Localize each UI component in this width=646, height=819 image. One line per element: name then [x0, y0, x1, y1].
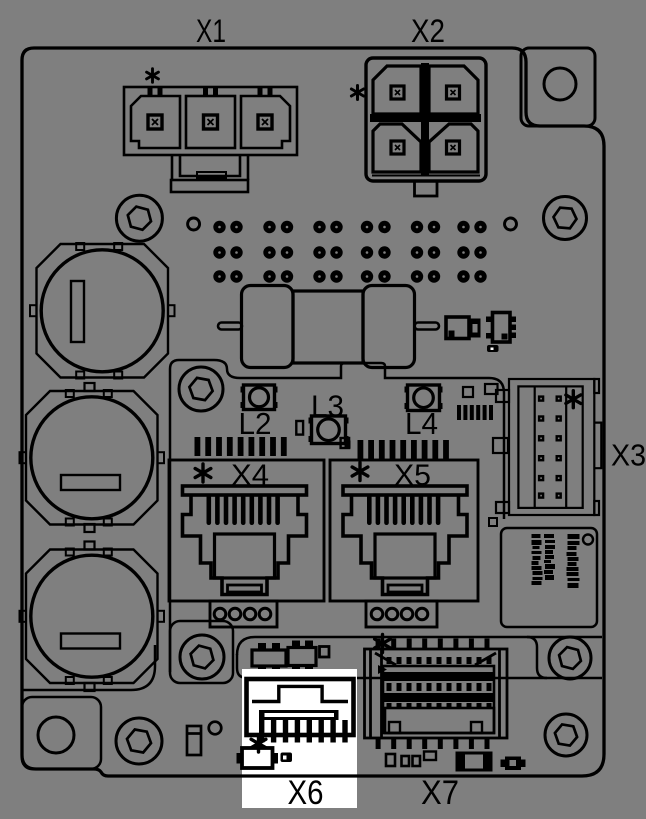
svg-text:L4: L4	[405, 406, 438, 441]
svg-text:X4: X4	[231, 459, 269, 492]
svg-text:X1: X1	[196, 13, 226, 49]
svg-text:L2: L2	[239, 406, 272, 441]
svg-text:X7: X7	[421, 774, 459, 812]
svg-text:X5: X5	[394, 459, 431, 492]
svg-text:X6: X6	[288, 774, 324, 812]
svg-text:X2: X2	[411, 13, 445, 49]
svg-text:L3: L3	[311, 389, 344, 424]
svg-text:X3: X3	[611, 438, 646, 473]
